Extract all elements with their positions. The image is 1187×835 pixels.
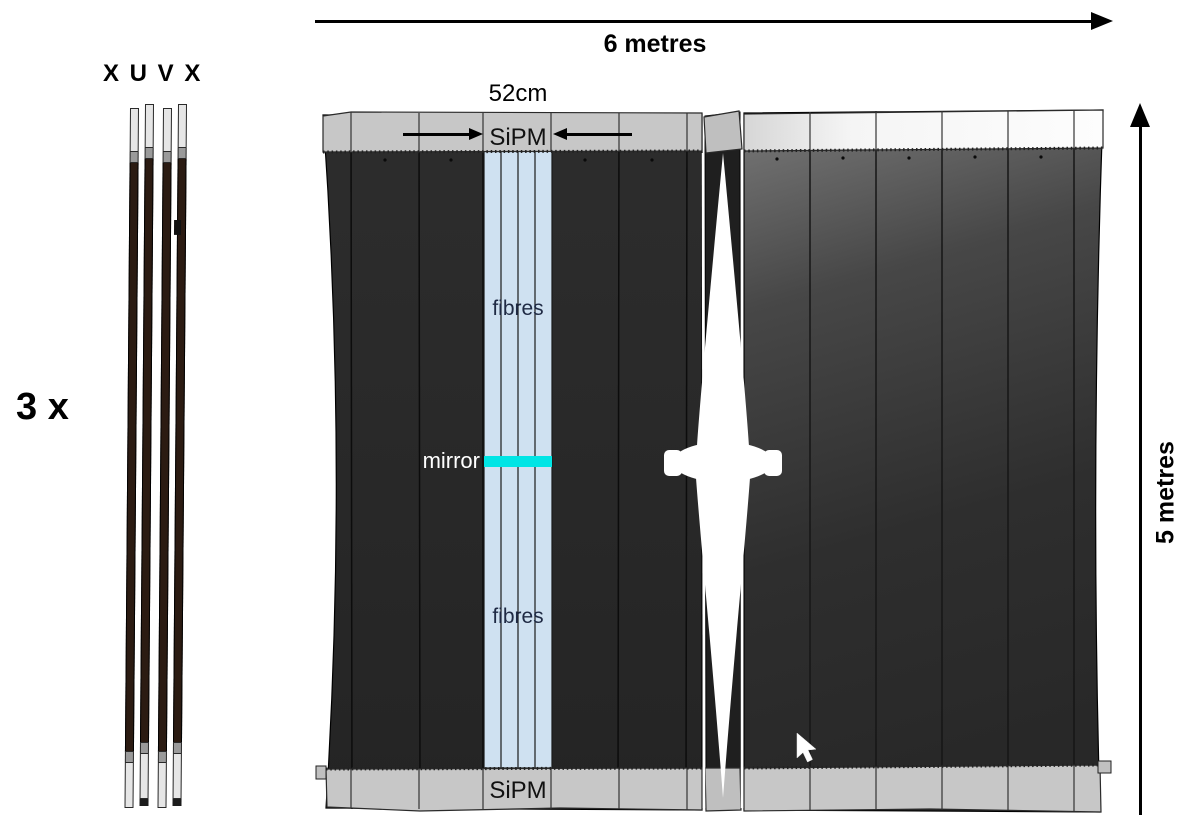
strip-bottom-joint (125, 751, 134, 762)
strip-top-joint (178, 148, 187, 159)
strip-top-cap (178, 104, 187, 148)
height-dimension-line (1139, 124, 1142, 815)
sipm-top-label: SiPM (482, 124, 554, 152)
strip-foot (172, 799, 181, 806)
strip-bottom-joint (173, 742, 182, 753)
fibres-top-label: fibres (482, 297, 554, 321)
width-dimension-label: 6 metres (545, 30, 765, 59)
sipm-arrow-left-line (403, 133, 471, 136)
strip-bottom-joint (158, 751, 167, 762)
strip-bottom-joint (140, 742, 149, 753)
fibres-bottom-label: fibres (482, 605, 554, 629)
scifi-tracker-diagram: 6 metres 5 metres 52cm SiPM fibres fibre… (0, 0, 1187, 835)
strip-bottom-cap (158, 762, 167, 808)
bottom-band-tab-right (1098, 761, 1111, 773)
module-width-label: 52cm (468, 80, 568, 108)
strip-top-cap (130, 108, 139, 152)
strip-bottom-cap (173, 753, 182, 799)
right-half-panel (744, 110, 1103, 812)
width-arrowhead-icon (1091, 12, 1113, 30)
strip-connector-tab (174, 220, 181, 235)
top-readout-band-right (744, 110, 1103, 151)
station-count-label: 3 x (16, 386, 69, 429)
layer-orientation-label: X U V X (103, 60, 202, 88)
width-dimension-line (315, 20, 1095, 23)
strip-top-joint (130, 152, 139, 163)
mirror-label: mirror (398, 448, 480, 474)
strip-bottom-cap (125, 762, 134, 808)
bottom-readout-band-right (744, 765, 1101, 812)
height-dimension-label: 5 metres (1152, 413, 1181, 573)
strip-top-cap (145, 104, 154, 148)
strip-top-joint (163, 152, 172, 163)
strip-bottom-cap (140, 753, 149, 799)
strip-foot (139, 799, 148, 806)
bottom-band-tab-left (316, 766, 326, 779)
sipm-arrow-left-head-icon (469, 128, 483, 140)
top-readout-band-seam (704, 111, 742, 153)
sipm-arrow-right-head-icon (553, 128, 567, 140)
mirror-bar (484, 456, 552, 467)
sipm-bottom-label: SiPM (482, 777, 554, 805)
sipm-arrow-right-line (566, 133, 632, 136)
strip-top-joint (145, 148, 154, 159)
strip-top-cap (163, 108, 172, 152)
height-arrowhead-icon (1130, 103, 1150, 127)
